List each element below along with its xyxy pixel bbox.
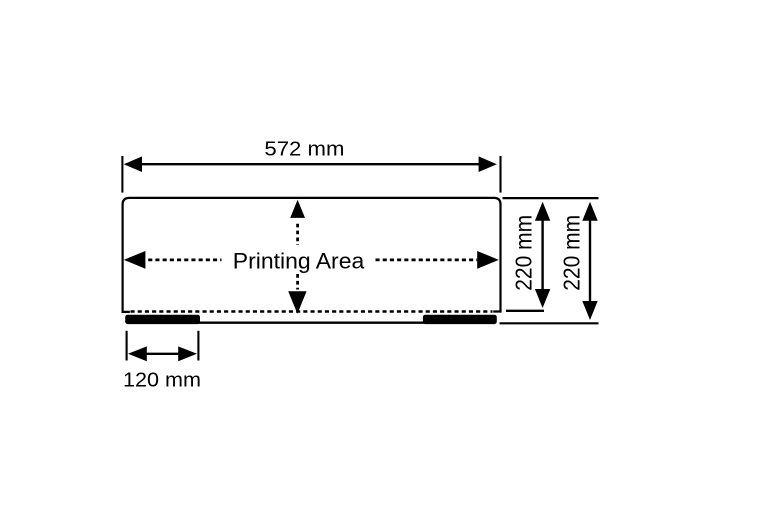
svg-text:220 mm: 220 mm [559,215,585,291]
svg-text:572 mm: 572 mm [264,139,344,161]
svg-text:120 mm: 120 mm [123,370,201,392]
svg-text:220 mm: 220 mm [511,215,537,291]
svg-text:Printing Area: Printing Area [233,248,365,273]
